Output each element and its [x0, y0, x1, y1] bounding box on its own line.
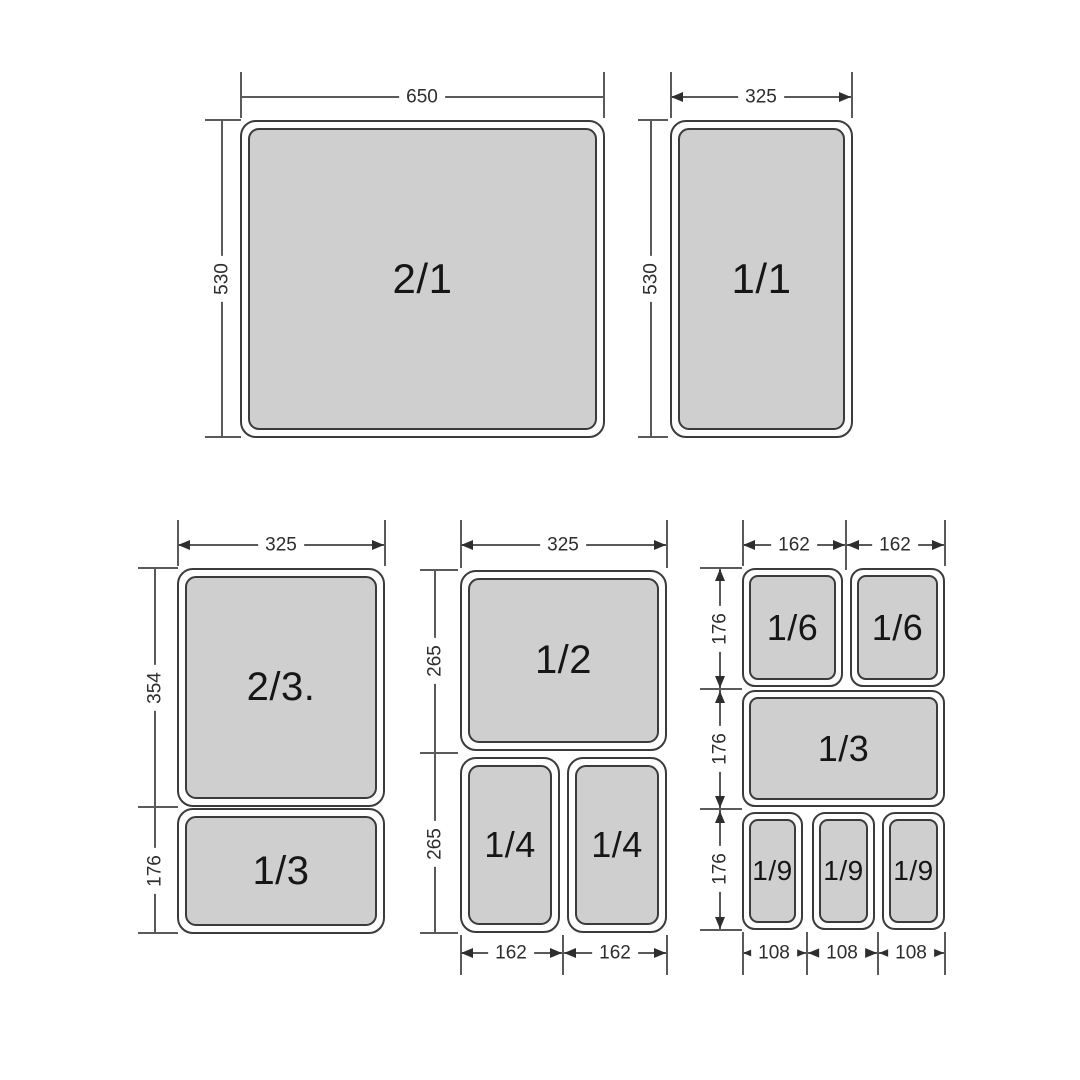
- arrowhead-down: [715, 796, 725, 808]
- dim-height-1-3-right: 176: [711, 726, 730, 772]
- arrowhead-right: [550, 948, 562, 958]
- arrowhead-left: [461, 540, 473, 550]
- pan-1-6-b-label: 1/6: [872, 607, 924, 649]
- extension-line: [384, 520, 386, 566]
- arrowhead-left: [671, 92, 683, 102]
- arrowhead-right: [372, 540, 384, 550]
- extension-line: [944, 932, 946, 975]
- arrowhead-right: [932, 540, 944, 550]
- dim-width-1-4-b: 162: [592, 944, 638, 963]
- pan-1-4-b-label: 1/4: [591, 824, 643, 866]
- extension-line: [944, 520, 946, 566]
- extension-line: [666, 935, 668, 975]
- pan-1-9-b-label: 1/9: [823, 855, 863, 887]
- extension-line: [603, 72, 605, 118]
- arrowhead-right: [865, 948, 877, 958]
- extension-line: [205, 436, 241, 438]
- extension-line: [638, 436, 668, 438]
- dim-height-1-6: 176: [711, 606, 730, 652]
- pan-2-1-well: 2/1: [248, 128, 597, 430]
- dim-height-1-2: 265: [426, 638, 445, 684]
- arrowhead-left: [461, 948, 473, 958]
- arrowhead-up: [715, 811, 725, 823]
- dim-height-top-right: 530: [642, 256, 661, 302]
- arrowhead-right: [833, 540, 845, 550]
- dim-width-1-4-a: 162: [488, 944, 534, 963]
- pan-1-3-right: 1/3: [742, 690, 945, 807]
- pan-1-4-a-label: 1/4: [484, 824, 536, 866]
- pan-1-9-b-well: 1/9: [819, 819, 868, 923]
- pan-1-1: 1/1: [670, 120, 853, 438]
- dim-width-1-9-a: 108: [751, 944, 797, 963]
- extension-line: [138, 567, 178, 569]
- dim-height-1-3-left: 176: [146, 848, 165, 894]
- extension-line: [420, 932, 458, 934]
- dim-width-bottom-middle: 325: [540, 536, 586, 555]
- arrowhead-down: [715, 917, 725, 929]
- pan-1-2-label: 1/2: [535, 638, 592, 683]
- pan-1-3-left-well: 1/3: [185, 816, 377, 926]
- pan-1-9-a: 1/9: [742, 812, 803, 930]
- pan-1-4-b: 1/4: [567, 757, 667, 933]
- pan-1-6-a-well: 1/6: [749, 575, 836, 680]
- pan-1-4-a-well: 1/4: [468, 765, 552, 925]
- extension-line: [240, 72, 242, 118]
- pan-1-6-b: 1/6: [850, 568, 945, 687]
- pan-1-3-left-label: 1/3: [252, 849, 309, 894]
- dim-width-1-6-a: 162: [771, 536, 817, 555]
- pan-2-3-well: 2/3.: [185, 576, 377, 799]
- dim-width-1-6-b: 162: [872, 536, 918, 555]
- pan-2-1-label: 2/1: [393, 255, 453, 303]
- arrowhead-left: [564, 948, 576, 958]
- extension-line: [138, 932, 178, 934]
- extension-line: [700, 808, 742, 810]
- gastronorm-size-diagram: 2/1 650 530 1/1 325 530 2/3. 1/3 325: [0, 0, 1080, 1080]
- arrowhead-right: [654, 540, 666, 550]
- dim-height-1-9: 176: [711, 846, 730, 892]
- extension-line: [420, 752, 458, 754]
- pan-1-9-c: 1/9: [882, 812, 945, 930]
- extension-line: [205, 119, 241, 121]
- pan-1-2: 1/2: [460, 570, 667, 751]
- dim-height-top-left: 530: [213, 256, 232, 302]
- extension-line: [700, 929, 742, 931]
- extension-line: [851, 72, 853, 118]
- pan-1-2-well: 1/2: [468, 578, 659, 743]
- pan-1-6-b-well: 1/6: [857, 575, 938, 680]
- pan-1-4-b-well: 1/4: [575, 765, 659, 925]
- arrowhead-left: [743, 540, 755, 550]
- pan-1-3-right-well: 1/3: [749, 697, 938, 800]
- dim-width-bottom-left: 325: [258, 536, 304, 555]
- pan-1-9-b: 1/9: [812, 812, 875, 930]
- pan-1-9-a-label: 1/9: [752, 855, 792, 887]
- dim-width-1-9-b: 108: [819, 944, 865, 963]
- arrowhead-left: [178, 540, 190, 550]
- dim-width-top-right: 325: [738, 88, 784, 107]
- extension-line: [638, 119, 668, 121]
- arrowhead-up: [715, 569, 725, 581]
- arrowhead-up: [715, 691, 725, 703]
- pan-2-1: 2/1: [240, 120, 605, 438]
- pan-2-3-label: 2/3.: [247, 665, 316, 710]
- dim-height-1-4: 265: [426, 821, 445, 867]
- extension-line: [700, 688, 742, 690]
- dim-width-top-left: 650: [399, 88, 445, 107]
- arrowhead-right: [839, 92, 851, 102]
- arrowhead-right: [654, 948, 666, 958]
- extension-line: [420, 569, 458, 571]
- pan-1-1-well: 1/1: [678, 128, 845, 430]
- pan-1-9-a-well: 1/9: [749, 819, 796, 923]
- pan-1-6-a-label: 1/6: [767, 607, 819, 649]
- pan-1-3-left: 1/3: [177, 808, 385, 934]
- extension-line: [666, 520, 668, 568]
- pan-1-9-c-well: 1/9: [889, 819, 938, 923]
- arrowhead-down: [715, 676, 725, 688]
- pan-1-1-label: 1/1: [732, 255, 792, 303]
- pan-1-6-a: 1/6: [742, 568, 843, 687]
- pan-2-3: 2/3.: [177, 568, 385, 807]
- pan-1-4-a: 1/4: [460, 757, 560, 933]
- arrowhead-left: [847, 540, 859, 550]
- pan-1-3-right-label: 1/3: [818, 728, 870, 770]
- dim-height-2-3: 354: [146, 665, 165, 711]
- pan-1-9-c-label: 1/9: [893, 855, 933, 887]
- extension-line: [138, 806, 178, 808]
- dim-width-1-9-c: 108: [888, 944, 934, 963]
